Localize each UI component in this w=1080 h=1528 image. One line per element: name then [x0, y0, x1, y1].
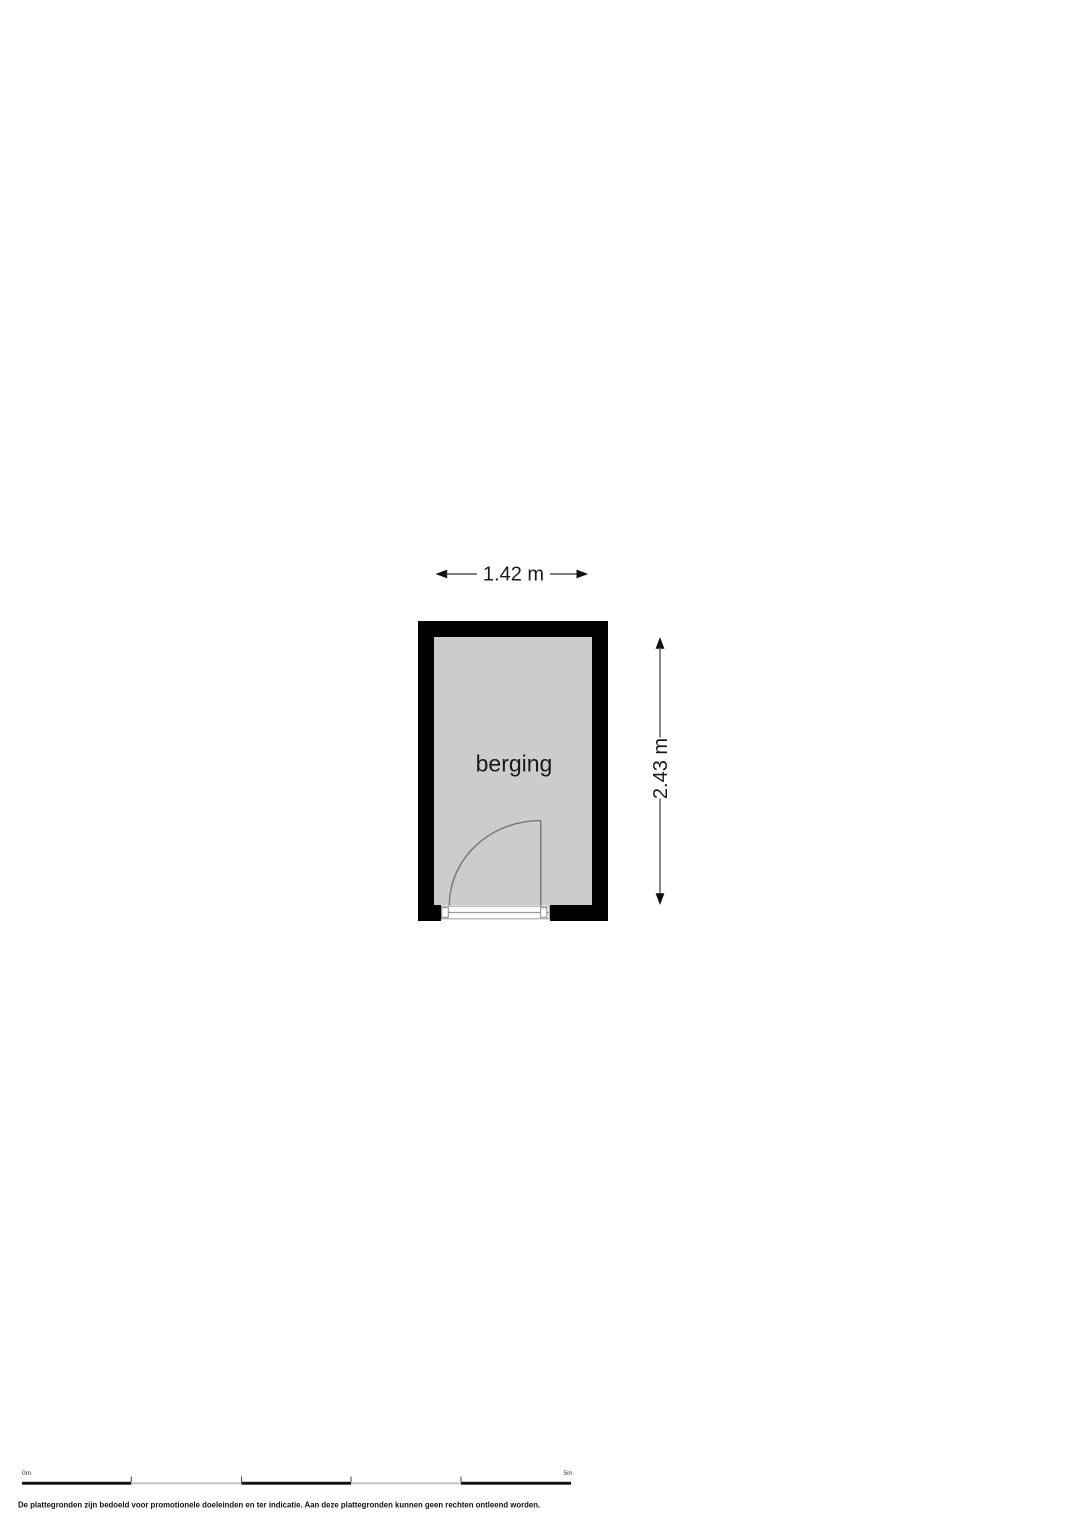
- svg-text:De plattegronden zijn bedoeld: De plattegronden zijn bedoeld voor promo…: [18, 1501, 540, 1510]
- svg-text:5m: 5m: [563, 1470, 572, 1477]
- svg-text:0m: 0m: [22, 1470, 31, 1477]
- svg-text:2.43 m: 2.43 m: [650, 738, 672, 799]
- svg-text:1.42 m: 1.42 m: [483, 564, 544, 586]
- svg-text:berging: berging: [476, 751, 553, 777]
